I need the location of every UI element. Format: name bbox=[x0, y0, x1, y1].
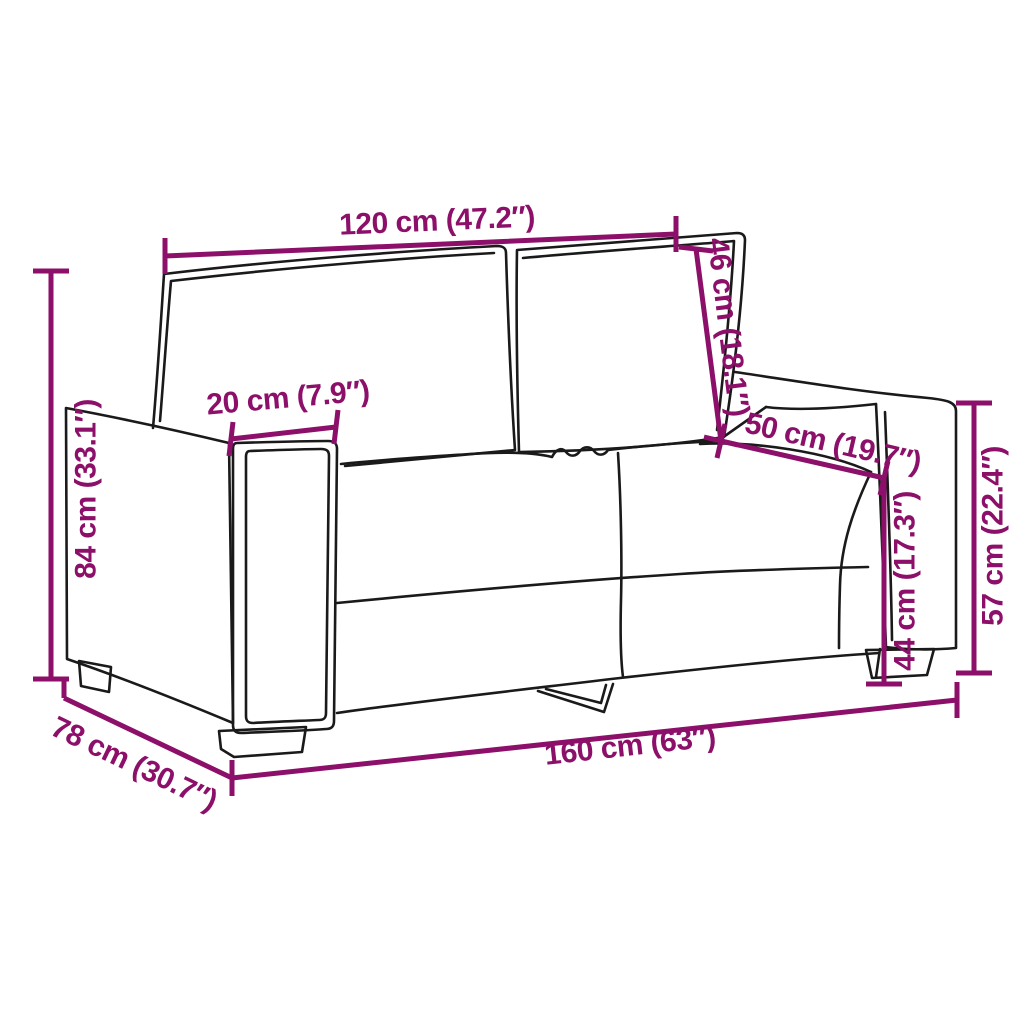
dimension-back-width: 120 cm (47.2″) bbox=[165, 200, 676, 274]
sofa-dimension-diagram: 120 cm (47.2″) 46 cm (18.1″) 20 cm (7.9″… bbox=[0, 0, 1024, 1024]
dim-line-overall-height bbox=[33, 271, 69, 698]
dimension-overall-depth: 78 cm (30.7″) bbox=[46, 698, 232, 818]
diagram-canvas: 120 cm (47.2″) 46 cm (18.1″) 20 cm (7.9″… bbox=[0, 0, 1024, 1024]
dimension-armrest-width: 20 cm (7.9″) bbox=[205, 374, 371, 456]
dimension-annotations: 120 cm (47.2″) 46 cm (18.1″) 20 cm (7.9″… bbox=[33, 200, 1010, 817]
dim-label-armrest-width: 20 cm (7.9″) bbox=[205, 374, 371, 421]
dim-label-armrest-height: 57 cm (22.4″) bbox=[977, 446, 1010, 626]
left-armrest-front-face bbox=[233, 441, 337, 733]
dim-label-back-width: 120 cm (47.2″) bbox=[338, 200, 535, 242]
dim-label-seat-height: 44 cm (17.3″) bbox=[889, 491, 922, 671]
dim-label-backrest-height: 46 cm (18.1″) bbox=[701, 236, 756, 418]
center-v-leg bbox=[538, 684, 613, 712]
base-bottom-edge bbox=[337, 653, 879, 713]
seat-divider bbox=[618, 453, 623, 677]
dim-label-overall-width: 160 cm (63″) bbox=[543, 720, 717, 772]
left-armrest-front-seam bbox=[246, 449, 329, 723]
dimension-seat-depth: 50 cm (19.7″) bbox=[717, 407, 924, 495]
right-armrest-inner-rim bbox=[766, 404, 876, 409]
seat-front-seam bbox=[337, 567, 868, 603]
seat-right-edge bbox=[839, 472, 871, 648]
back-right-cushion-seam bbox=[523, 241, 734, 430]
dim-label-overall-height: 84 cm (33.1″) bbox=[70, 399, 103, 579]
dimension-armrest-height: 57 cm (22.4″) bbox=[956, 403, 1010, 673]
dim-label-overall-depth: 78 cm (30.7″) bbox=[46, 710, 222, 817]
sofa-line-drawing bbox=[66, 233, 956, 757]
dimension-overall-width: 160 cm (63″) bbox=[232, 682, 957, 778]
